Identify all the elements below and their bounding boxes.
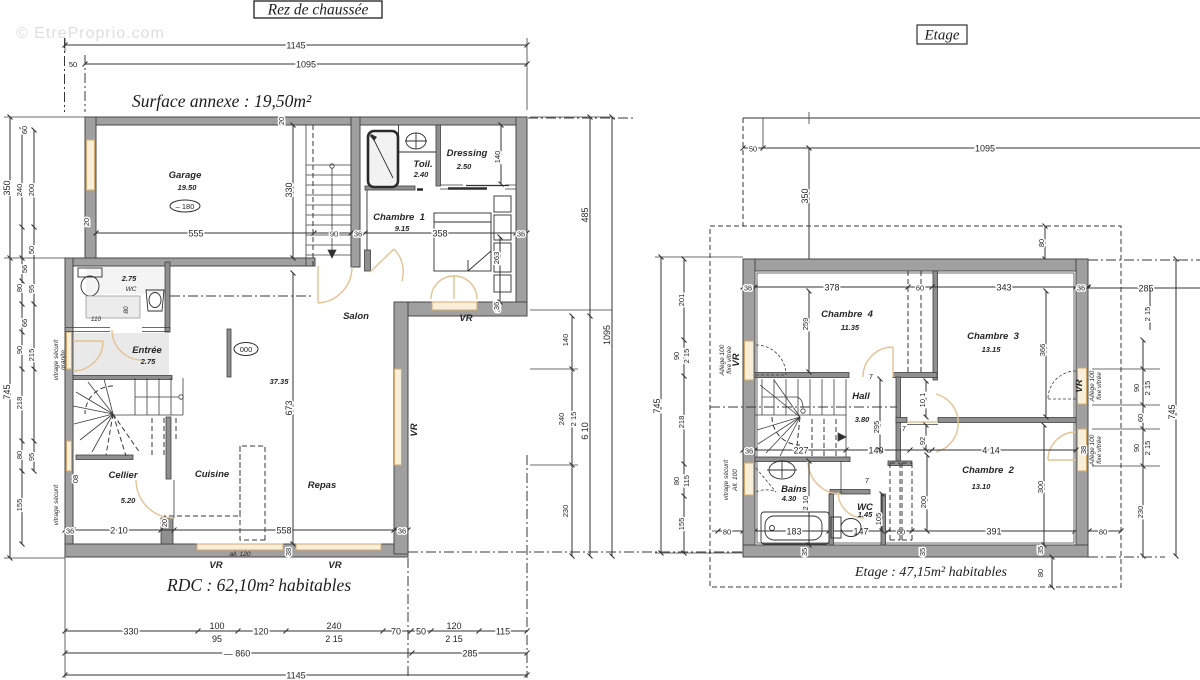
svg-text:200: 200 (27, 184, 36, 197)
svg-text:70: 70 (391, 627, 401, 637)
svg-text:5.20: 5.20 (121, 496, 136, 505)
svg-text:240: 240 (557, 413, 566, 426)
svg-text:Chambre 3: Chambre 3 (967, 331, 1019, 342)
svg-text:2.75: 2.75 (140, 357, 156, 366)
svg-text:36: 36 (354, 230, 362, 239)
svg-text:35: 35 (918, 548, 927, 556)
svg-text:350: 350 (800, 188, 810, 203)
svg-text:VR: VR (409, 423, 420, 436)
svg-text:Garage: Garage (169, 170, 202, 181)
svg-text:285: 285 (1138, 284, 1153, 294)
svg-text:673: 673 (284, 400, 294, 415)
svg-text:100: 100 (209, 621, 224, 631)
svg-text:92: 92 (918, 437, 927, 445)
svg-text:263: 263 (492, 252, 501, 265)
svg-text:2.50: 2.50 (456, 162, 472, 171)
svg-text:1145: 1145 (286, 41, 305, 51)
svg-text:227: 227 (793, 446, 808, 456)
svg-text:3.80: 3.80 (855, 415, 870, 424)
svg-text:1095: 1095 (975, 144, 995, 154)
svg-text:90: 90 (330, 230, 338, 239)
svg-text:343: 343 (996, 283, 1011, 293)
svg-text:2 15: 2 15 (1143, 381, 1152, 396)
svg-text:7: 7 (865, 476, 869, 485)
svg-text:6 10: 6 10 (580, 422, 590, 440)
svg-text:140: 140 (561, 334, 570, 347)
svg-text:230: 230 (561, 505, 570, 518)
svg-text:80: 80 (15, 451, 24, 459)
svg-text:95: 95 (27, 285, 36, 293)
svg-text:38: 38 (1079, 446, 1088, 454)
svg-text:36: 36 (492, 302, 501, 310)
svg-text:4 14: 4 14 (982, 446, 1000, 456)
svg-text:36: 36 (398, 527, 406, 536)
svg-text:95: 95 (212, 634, 222, 644)
svg-text:WC: WC (126, 286, 137, 293)
svg-text:140: 140 (493, 151, 502, 164)
svg-text:36: 36 (744, 284, 752, 293)
svg-text:vitrage sécurit: vitrage sécurit (53, 339, 60, 381)
svg-text:115: 115 (496, 627, 510, 637)
svg-text:Toil.: Toil. (413, 159, 432, 170)
svg-text:745: 745 (1167, 404, 1177, 419)
svg-text:13.15: 13.15 (982, 345, 1002, 354)
svg-text:Hall: Hall (852, 391, 870, 402)
svg-text:2 15: 2 15 (682, 349, 691, 364)
svg-text:Etage: Etage (924, 28, 960, 44)
svg-text:240: 240 (326, 621, 341, 631)
svg-text:Salon: Salon (343, 311, 369, 322)
svg-text:350: 350 (2, 180, 12, 195)
svg-text:2 15: 2 15 (1143, 441, 1152, 456)
svg-text:391: 391 (986, 527, 1001, 537)
svg-text:66: 66 (20, 319, 29, 327)
svg-text:– 180: – 180 (176, 202, 195, 211)
svg-text:378: 378 (824, 283, 839, 293)
svg-text:vitrage sécurit: vitrage sécurit (723, 459, 730, 501)
svg-text:120: 120 (446, 621, 461, 631)
svg-text:7: 7 (869, 372, 873, 381)
svg-text:2.40: 2.40 (413, 170, 429, 179)
svg-text:36: 36 (1077, 284, 1085, 293)
svg-text:9.15: 9.15 (395, 224, 410, 233)
svg-text:90: 90 (672, 352, 681, 360)
svg-text:20: 20 (82, 218, 91, 226)
svg-text:90: 90 (1132, 384, 1141, 392)
svg-text:1.45: 1.45 (858, 510, 873, 519)
svg-text:VR: VR (731, 353, 742, 366)
svg-text:50: 50 (27, 246, 36, 254)
svg-text:35: 35 (800, 548, 809, 556)
svg-text:60: 60 (20, 126, 29, 134)
svg-text:36: 36 (745, 447, 753, 456)
svg-text:11.35: 11.35 (841, 323, 860, 332)
svg-text:1145: 1145 (286, 671, 305, 680)
svg-text:745: 745 (652, 398, 662, 413)
svg-text:08: 08 (71, 475, 80, 483)
svg-text:555: 555 (188, 229, 203, 239)
svg-text:fixe vitrée: fixe vitrée (1096, 436, 1103, 464)
svg-text:2.75: 2.75 (121, 274, 137, 283)
svg-text:485: 485 (580, 207, 590, 222)
svg-text:80: 80 (1099, 528, 1107, 537)
svg-text:2 15: 2 15 (325, 634, 343, 644)
svg-text:VR: VR (209, 560, 222, 571)
svg-text:200: 200 (919, 496, 928, 509)
svg-text:Chambre 1: Chambre 1 (373, 212, 425, 223)
svg-text:295: 295 (872, 421, 881, 434)
svg-text:90: 90 (15, 346, 24, 354)
svg-text:7: 7 (902, 424, 906, 433)
svg-text:19.50: 19.50 (178, 183, 198, 192)
svg-text:Cuisine: Cuisine (195, 469, 230, 480)
svg-text:105: 105 (874, 513, 883, 526)
svg-text:Cellier: Cellier (108, 470, 138, 481)
svg-text:Etage : 47,15m² habitables: Etage : 47,15m² habitables (854, 565, 1008, 580)
svg-text:4.30: 4.30 (781, 494, 797, 503)
svg-text:60: 60 (916, 284, 924, 293)
svg-text:366: 366 (1038, 344, 1047, 357)
svg-text:35: 35 (1036, 546, 1045, 554)
svg-text:80: 80 (123, 306, 130, 314)
svg-text:1095: 1095 (602, 325, 612, 345)
svg-text:358: 358 (432, 229, 447, 239)
svg-text:50: 50 (416, 627, 426, 637)
svg-text:Chambre 2: Chambre 2 (962, 465, 1014, 476)
svg-text:2 10: 2 10 (110, 526, 128, 536)
svg-text:37.35: 37.35 (270, 377, 290, 386)
svg-text:1095: 1095 (296, 60, 316, 70)
svg-text:VR: VR (328, 560, 341, 571)
svg-text:80: 80 (1036, 569, 1045, 577)
svg-text:120: 120 (253, 627, 268, 637)
svg-text:56: 56 (20, 265, 29, 273)
svg-text:— 860: — 860 (224, 649, 251, 659)
svg-text:Dressing: Dressing (447, 148, 488, 159)
svg-text:558: 558 (276, 526, 291, 536)
svg-text:2 15: 2 15 (569, 412, 578, 427)
svg-text:Rez de chaussée: Rez de chaussée (267, 2, 369, 19)
svg-text:80: 80 (15, 284, 24, 292)
svg-text:Repas: Repas (308, 480, 337, 491)
svg-text:50: 50 (69, 60, 77, 69)
svg-text:fixe vitrée: fixe vitrée (1096, 372, 1103, 400)
svg-text:300: 300 (1036, 481, 1045, 494)
svg-text:155: 155 (677, 518, 686, 531)
svg-text:© EtreProprio.com: © EtreProprio.com (16, 25, 165, 42)
svg-text:60: 60 (897, 528, 905, 537)
svg-text:215: 215 (27, 349, 36, 362)
svg-text:VR: VR (1074, 379, 1085, 392)
svg-text:2 15: 2 15 (445, 634, 463, 644)
svg-text:95: 95 (27, 453, 36, 461)
svg-text:259: 259 (801, 318, 810, 331)
svg-text:2 15: 2 15 (1143, 307, 1152, 322)
svg-text:Allège 100: Allège 100 (719, 344, 726, 376)
svg-text:20: 20 (277, 117, 286, 125)
svg-text:Chambre 4: Chambre 4 (821, 309, 873, 320)
svg-text:183: 183 (786, 527, 801, 537)
svg-text:Allège 100: Allège 100 (1089, 434, 1096, 466)
svg-text:80: 80 (672, 477, 681, 485)
svg-text:90: 90 (1132, 444, 1141, 452)
svg-text:115: 115 (682, 475, 691, 487)
svg-text:285: 285 (462, 649, 477, 659)
svg-text:230: 230 (1136, 506, 1145, 519)
svg-text:Entrée: Entrée (132, 345, 162, 356)
svg-text:50: 50 (749, 145, 757, 154)
svg-text:000: 000 (240, 345, 253, 354)
svg-text:all. 120: all. 120 (230, 551, 251, 558)
svg-text:60: 60 (1136, 414, 1145, 422)
svg-text:155: 155 (15, 499, 24, 512)
svg-text:240: 240 (15, 184, 24, 197)
svg-text:All. 100: All. 100 (732, 469, 739, 492)
svg-text:36: 36 (66, 527, 74, 536)
svg-text:Surface annexe : 19,50m²: Surface annexe : 19,50m² (132, 91, 312, 111)
svg-text:2 10: 2 10 (801, 496, 810, 511)
svg-text:38: 38 (284, 548, 293, 556)
svg-text:RDC : 62,10m² habitables: RDC : 62,10m² habitables (166, 575, 351, 595)
svg-text:218: 218 (15, 397, 24, 410)
svg-text:140: 140 (868, 446, 883, 456)
svg-text:218: 218 (677, 416, 686, 429)
svg-text:Allège 100: Allège 100 (1089, 370, 1096, 402)
svg-text:80: 80 (1037, 239, 1046, 247)
svg-text:10 1: 10 1 (918, 393, 927, 408)
svg-text:VR: VR (459, 313, 472, 324)
svg-text:330: 330 (123, 627, 138, 637)
svg-text:110: 110 (91, 316, 102, 323)
svg-text:201: 201 (677, 294, 686, 307)
svg-text:330: 330 (284, 182, 294, 197)
svg-text:vitrage sécurit: vitrage sécurit (53, 484, 60, 526)
svg-text:36: 36 (517, 230, 525, 239)
svg-text:80: 80 (723, 528, 731, 537)
svg-text:745: 745 (2, 384, 12, 399)
svg-text:20: 20 (160, 519, 169, 527)
svg-text:13.10: 13.10 (972, 482, 992, 491)
